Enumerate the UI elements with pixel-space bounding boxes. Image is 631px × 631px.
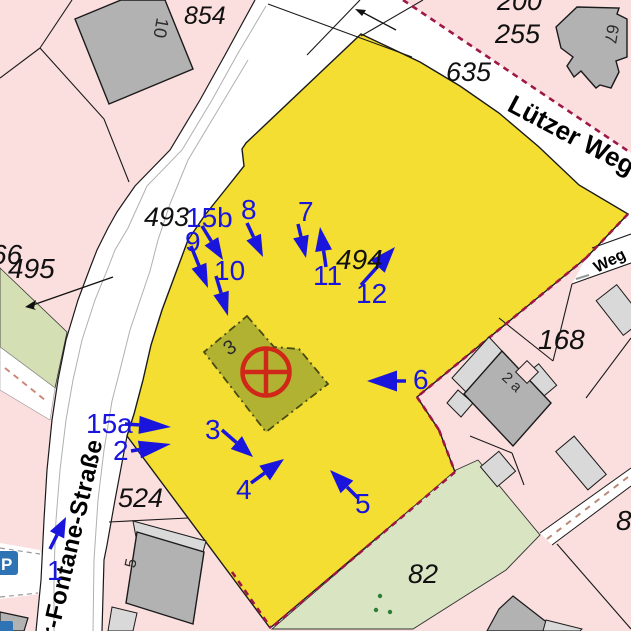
- svg-text:635: 635: [446, 57, 492, 87]
- svg-text:7: 7: [298, 196, 314, 227]
- svg-text:2: 2: [113, 435, 129, 466]
- svg-text:168: 168: [538, 324, 585, 355]
- svg-text:15a: 15a: [86, 408, 133, 439]
- svg-text:P: P: [1, 555, 12, 574]
- svg-text:494: 494: [336, 244, 383, 275]
- svg-text:5: 5: [355, 488, 371, 519]
- svg-text:495: 495: [8, 253, 55, 284]
- svg-text:82: 82: [408, 559, 438, 589]
- svg-text:854: 854: [184, 2, 226, 30]
- svg-text:12: 12: [356, 278, 387, 309]
- svg-text:10: 10: [149, 16, 172, 39]
- svg-text:10: 10: [214, 255, 245, 286]
- svg-text:200: 200: [496, 0, 542, 16]
- svg-text:4: 4: [236, 474, 252, 505]
- svg-text:493: 493: [144, 202, 189, 232]
- svg-text:8: 8: [241, 194, 257, 225]
- svg-text:524: 524: [118, 483, 163, 513]
- svg-text:3: 3: [205, 414, 221, 445]
- svg-text:1: 1: [47, 555, 63, 586]
- svg-text:255: 255: [494, 19, 541, 49]
- svg-text:11: 11: [313, 260, 342, 291]
- svg-text:15b: 15b: [186, 202, 233, 233]
- svg-text:67: 67: [601, 23, 623, 45]
- svg-text:6: 6: [413, 364, 429, 395]
- svg-text:82: 82: [616, 505, 631, 536]
